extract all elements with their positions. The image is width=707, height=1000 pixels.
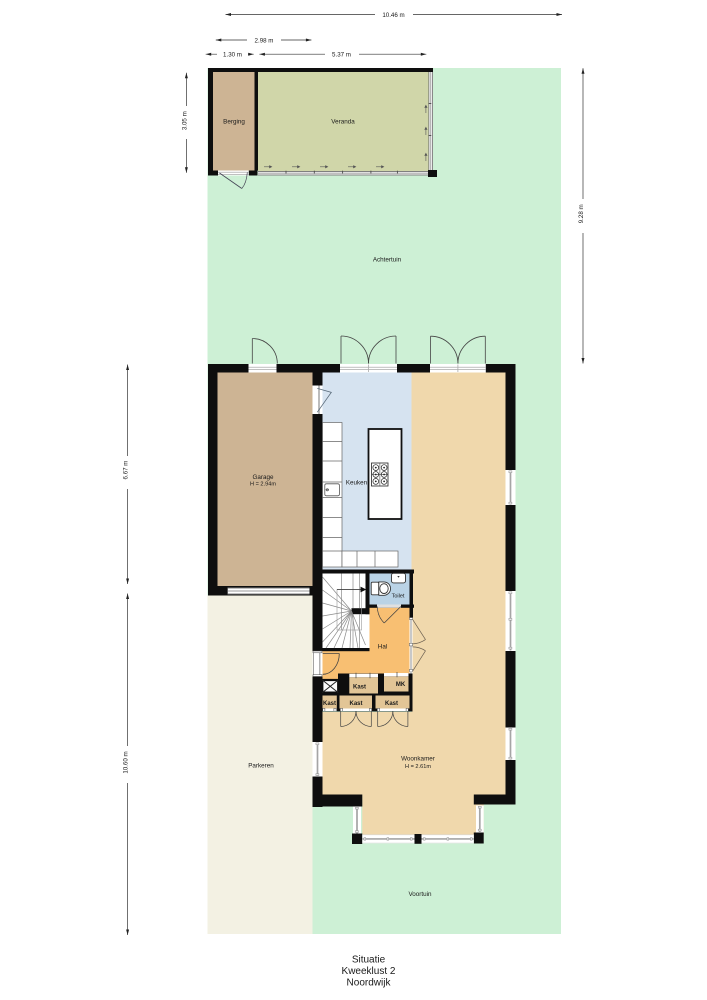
svg-text:Kast: Kast [353, 685, 366, 691]
svg-text:Kast: Kast [385, 701, 398, 707]
svg-text:1.30 m: 1.30 m [223, 52, 242, 59]
svg-text:Garage: Garage [252, 474, 274, 481]
svg-text:H = 2.61m: H = 2.61m [405, 764, 431, 770]
svg-text:Veranda: Veranda [331, 119, 355, 126]
svg-text:5.37 m: 5.37 m [332, 52, 351, 59]
svg-text:Keuken: Keuken [346, 480, 368, 487]
svg-text:Situatie: Situatie [352, 955, 386, 966]
svg-text:Hal: Hal [378, 644, 387, 651]
svg-text:H = 2.94m: H = 2.94m [250, 482, 276, 488]
svg-text:Voortuin: Voortuin [408, 891, 432, 898]
svg-text:Parkeren: Parkeren [248, 763, 274, 770]
svg-text:Kast: Kast [323, 701, 336, 707]
svg-text:Noordwijk: Noordwijk [347, 978, 392, 989]
svg-text:Kweeklust 2: Kweeklust 2 [342, 966, 396, 977]
svg-text:Berging: Berging [223, 119, 245, 126]
svg-text:Achtertuin: Achtertuin [373, 257, 402, 264]
svg-text:3.05 m: 3.05 m [182, 111, 189, 130]
svg-text:10.60 m: 10.60 m [123, 751, 130, 773]
svg-text:Kast: Kast [349, 701, 362, 707]
svg-text:6.67 m: 6.67 m [123, 461, 130, 480]
svg-text:Toilet: Toilet [392, 594, 405, 600]
svg-text:9.28 m: 9.28 m [578, 204, 585, 223]
svg-text:MK: MK [396, 682, 406, 688]
svg-text:2.98 m: 2.98 m [255, 38, 274, 45]
svg-text:Woonkamer: Woonkamer [401, 756, 435, 763]
svg-text:10.46 m: 10.46 m [382, 12, 404, 19]
